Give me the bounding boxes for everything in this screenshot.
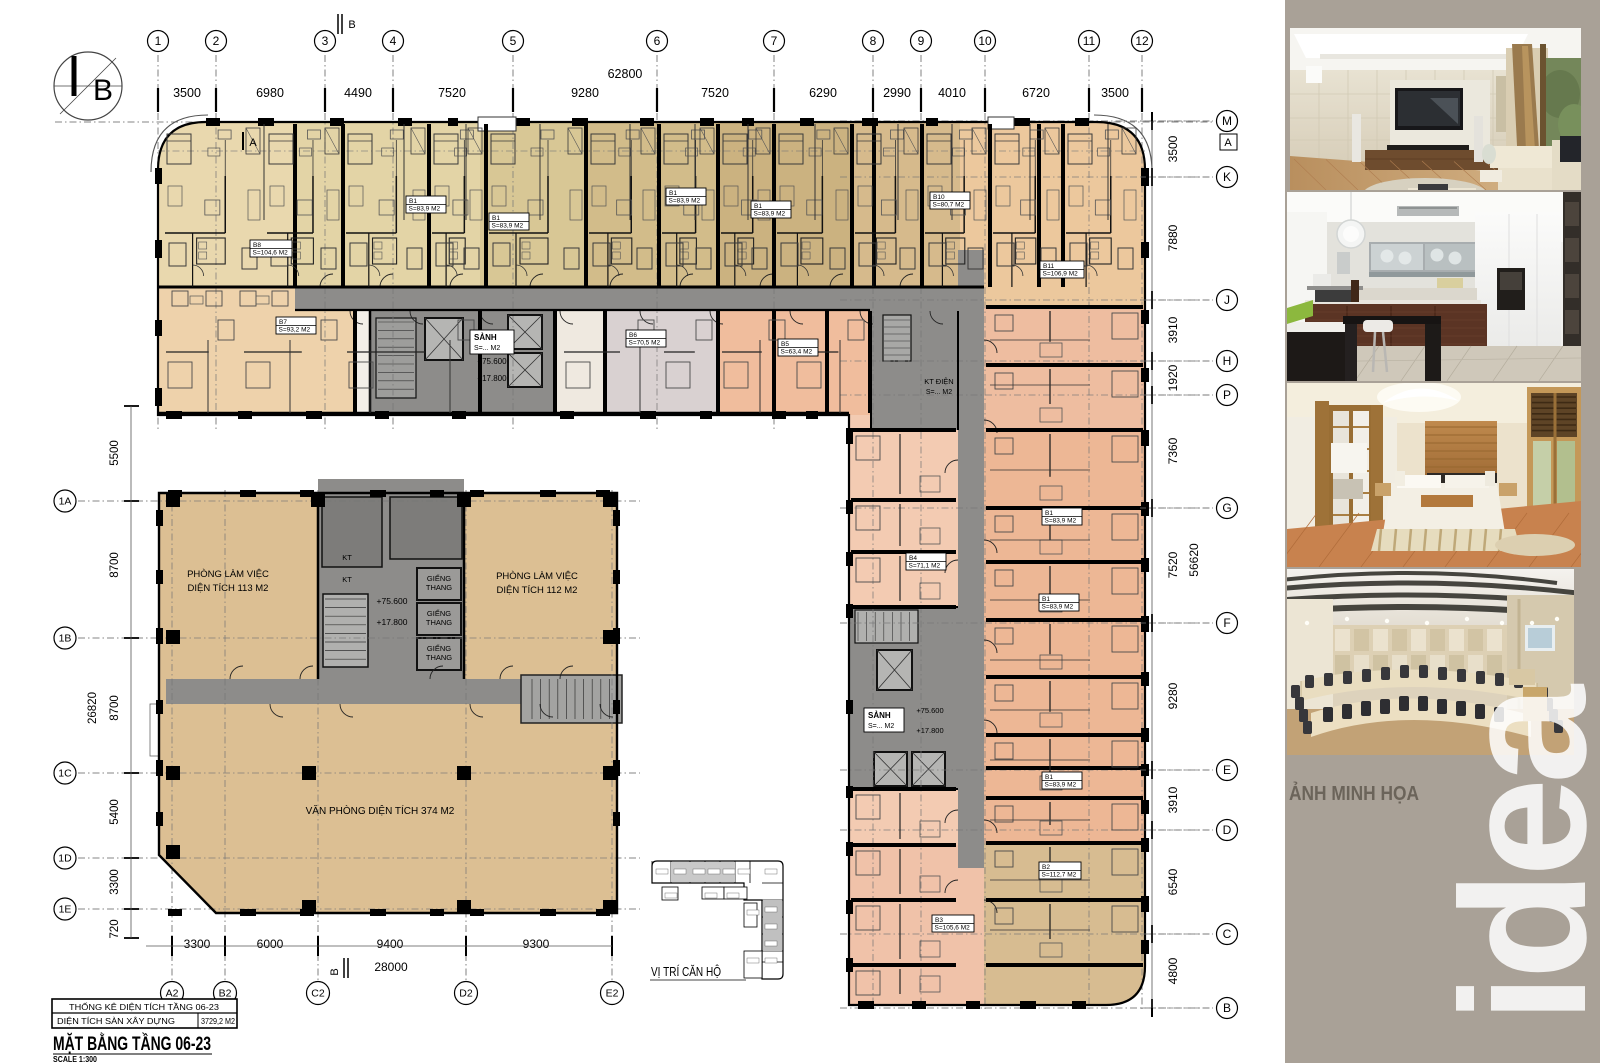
svg-text:D: D (1223, 823, 1232, 837)
svg-text:G: G (1222, 501, 1231, 515)
svg-text:GIẾNG: GIẾNG (427, 608, 451, 618)
svg-text:56620: 56620 (1187, 543, 1201, 577)
svg-text:3729,2 M2: 3729,2 M2 (201, 1016, 235, 1026)
svg-text:S=70,5 M2: S=70,5 M2 (629, 340, 661, 347)
svg-text:S=71,1 M2: S=71,1 M2 (909, 563, 941, 570)
svg-text:C2: C2 (311, 988, 325, 1000)
svg-text:S=104,6 M2: S=104,6 M2 (253, 250, 289, 257)
svg-text:B1: B1 (754, 203, 762, 210)
svg-text:6: 6 (654, 34, 661, 48)
svg-text:THANG: THANG (426, 618, 452, 627)
svg-text:K: K (1223, 170, 1231, 184)
svg-text:26820: 26820 (87, 692, 99, 724)
svg-text:C: C (1223, 927, 1232, 941)
svg-text:S=83,9 M2: S=83,9 M2 (754, 211, 786, 218)
svg-text:GIẾNG: GIẾNG (427, 643, 451, 653)
svg-text:7360: 7360 (1166, 437, 1180, 464)
svg-text:8700: 8700 (109, 695, 121, 721)
svg-text:9: 9 (918, 34, 925, 48)
svg-text:3300: 3300 (109, 869, 121, 895)
svg-text:3500: 3500 (1166, 135, 1180, 162)
svg-text:E: E (1223, 763, 1231, 777)
svg-text:B6: B6 (629, 332, 637, 339)
svg-text:3: 3 (322, 34, 329, 48)
svg-text:4490: 4490 (344, 86, 372, 100)
svg-text:B: B (93, 74, 113, 107)
svg-text:THỐNG KÊ DIỆN TÍCH TẦNG 06-23: THỐNG KÊ DIỆN TÍCH TẦNG 06-23 (69, 1001, 219, 1012)
svg-text:1B: 1B (59, 633, 72, 645)
svg-text:3910: 3910 (1166, 786, 1180, 813)
svg-text:S=63,4 M2: S=63,4 M2 (781, 349, 813, 356)
svg-text:4010: 4010 (938, 86, 966, 100)
svg-text:PHÒNG LÀM VIỆC: PHÒNG LÀM VIỆC (187, 569, 269, 580)
svg-text:DIỆN TÍCH 112 M2: DIỆN TÍCH 112 M2 (497, 585, 578, 596)
svg-text:1920: 1920 (1166, 364, 1180, 391)
svg-text:KT: KT (342, 575, 352, 584)
svg-text:A: A (1224, 137, 1232, 149)
svg-text:7880: 7880 (1166, 224, 1180, 251)
svg-text:GIẾNG: GIẾNG (427, 573, 451, 583)
svg-text:+17.800: +17.800 (916, 726, 943, 735)
svg-text:3500: 3500 (1101, 86, 1129, 100)
svg-text:6000: 6000 (257, 937, 284, 951)
svg-text:5500: 5500 (109, 440, 121, 466)
svg-text:S=... M2: S=... M2 (474, 345, 500, 352)
svg-text:10: 10 (978, 34, 992, 48)
svg-text:S=106,9 M2: S=106,9 M2 (1043, 271, 1079, 278)
svg-text:B3: B3 (935, 917, 943, 924)
svg-text:S=83,9 M2: S=83,9 M2 (669, 198, 701, 205)
svg-text:1E: 1E (59, 904, 72, 916)
svg-text:VỊ TRÍ CĂN HỘ: VỊ TRÍ CĂN HỘ (651, 964, 721, 979)
svg-text:2990: 2990 (883, 86, 911, 100)
svg-text:F: F (1223, 616, 1230, 630)
svg-text:DIỆN TÍCH SÀN XÂY DỰNG: DIỆN TÍCH SÀN XÂY DỰNG (57, 1016, 175, 1026)
svg-text:9280: 9280 (571, 86, 599, 100)
svg-text:4800: 4800 (1166, 957, 1180, 984)
svg-text:6290: 6290 (809, 86, 837, 100)
svg-text:11: 11 (1083, 34, 1096, 48)
svg-text:62800: 62800 (608, 67, 643, 81)
svg-text:S=... M2: S=... M2 (926, 389, 952, 396)
svg-text:8700: 8700 (109, 552, 121, 578)
svg-text:S=... M2: S=... M2 (868, 723, 894, 730)
svg-text:720: 720 (109, 919, 121, 938)
svg-text:7520: 7520 (1166, 551, 1180, 578)
svg-text:SCALE 1:300: SCALE 1:300 (53, 1054, 97, 1063)
svg-text:J: J (1224, 293, 1230, 307)
svg-text:1A: 1A (59, 496, 72, 508)
svg-text:S=83,9 M2: S=83,9 M2 (1042, 604, 1074, 611)
svg-text:1C: 1C (58, 768, 72, 780)
svg-text:THANG: THANG (426, 653, 452, 662)
svg-text:B: B (1223, 1001, 1231, 1015)
svg-text:1D: 1D (58, 853, 72, 865)
svg-text:5: 5 (510, 34, 517, 48)
svg-text:+75.600: +75.600 (377, 596, 408, 606)
svg-text:D2: D2 (459, 988, 473, 1000)
svg-text:4: 4 (390, 34, 397, 48)
svg-text:DIỆN TÍCH 113 M2: DIỆN TÍCH 113 M2 (188, 583, 269, 594)
svg-text:THANG: THANG (426, 583, 452, 592)
svg-text:B1: B1 (1045, 774, 1053, 781)
svg-text:7520: 7520 (438, 86, 466, 100)
svg-text:S=93,2 M2: S=93,2 M2 (279, 327, 311, 334)
svg-text:E2: E2 (606, 988, 619, 1000)
svg-text:PHÒNG LÀM VIỆC: PHÒNG LÀM VIỆC (496, 571, 578, 582)
svg-text:B2: B2 (219, 988, 232, 1000)
svg-text:A2: A2 (166, 988, 179, 1000)
svg-text:28000: 28000 (374, 960, 408, 974)
svg-text:12: 12 (1135, 34, 1149, 48)
svg-text:S=83,9 M2: S=83,9 M2 (1045, 782, 1077, 789)
svg-text:8: 8 (870, 34, 877, 48)
svg-text:S=83,9 M2: S=83,9 M2 (409, 206, 441, 213)
svg-text:S=80,7 M2: S=80,7 M2 (933, 202, 965, 209)
svg-text:B11: B11 (1043, 263, 1054, 270)
svg-text:3910: 3910 (1166, 316, 1180, 343)
svg-text:3500: 3500 (173, 86, 201, 100)
svg-text:+75.600: +75.600 (477, 357, 507, 366)
svg-text:6980: 6980 (256, 86, 284, 100)
svg-text:B2: B2 (1042, 864, 1050, 871)
svg-text:9280: 9280 (1166, 682, 1180, 709)
svg-text:B4: B4 (909, 555, 917, 562)
svg-text:VĂN PHÒNG DIỆN TÍCH 374 M2: VĂN PHÒNG DIỆN TÍCH 374 M2 (306, 804, 455, 817)
svg-text:+17.800: +17.800 (377, 617, 408, 627)
svg-text:SẢNH: SẢNH (474, 333, 497, 342)
svg-text:6720: 6720 (1022, 86, 1050, 100)
svg-text:A: A (249, 137, 257, 149)
svg-text:S=83,9 M2: S=83,9 M2 (492, 223, 524, 230)
svg-text:2: 2 (213, 34, 220, 48)
svg-text:B1: B1 (492, 215, 500, 222)
svg-text:5400: 5400 (109, 799, 121, 825)
svg-text:B: B (329, 968, 341, 975)
svg-text:B1: B1 (409, 198, 417, 205)
svg-text:B1: B1 (1042, 596, 1050, 603)
svg-text:idea: idea (1424, 683, 1600, 1023)
svg-text:6540: 6540 (1166, 868, 1180, 895)
svg-text:3300: 3300 (184, 937, 211, 951)
svg-text:1: 1 (155, 34, 162, 48)
svg-text:S=105,6 M2: S=105,6 M2 (935, 925, 971, 932)
svg-text:B1: B1 (1045, 510, 1053, 517)
svg-text:MẶT BẰNG TẦNG 06-23: MẶT BẰNG TẦNG 06-23 (53, 1033, 211, 1055)
svg-text:SẢNH: SẢNH (868, 711, 891, 720)
svg-text:B7: B7 (279, 319, 287, 326)
svg-text:M: M (1222, 114, 1232, 128)
svg-text:P: P (1223, 388, 1231, 402)
svg-text:9300: 9300 (523, 937, 550, 951)
svg-text:B8: B8 (253, 242, 261, 249)
svg-text:B10: B10 (933, 194, 945, 201)
svg-text:H: H (1223, 354, 1232, 368)
svg-text:KT ĐIỆN: KT ĐIỆN (924, 377, 953, 386)
svg-text:B: B (348, 19, 355, 31)
svg-text:+75.600: +75.600 (916, 706, 943, 715)
svg-text:B1: B1 (669, 190, 677, 197)
svg-text:9400: 9400 (377, 937, 404, 951)
svg-text:7520: 7520 (701, 86, 729, 100)
svg-text:S=112,7 M2: S=112,7 M2 (1042, 872, 1077, 879)
svg-text:S=83,9 M2: S=83,9 M2 (1045, 518, 1077, 525)
svg-text:7: 7 (771, 34, 778, 48)
svg-text:+17.800: +17.800 (477, 374, 507, 383)
svg-text:KT: KT (342, 553, 352, 562)
svg-text:B5: B5 (781, 341, 789, 348)
